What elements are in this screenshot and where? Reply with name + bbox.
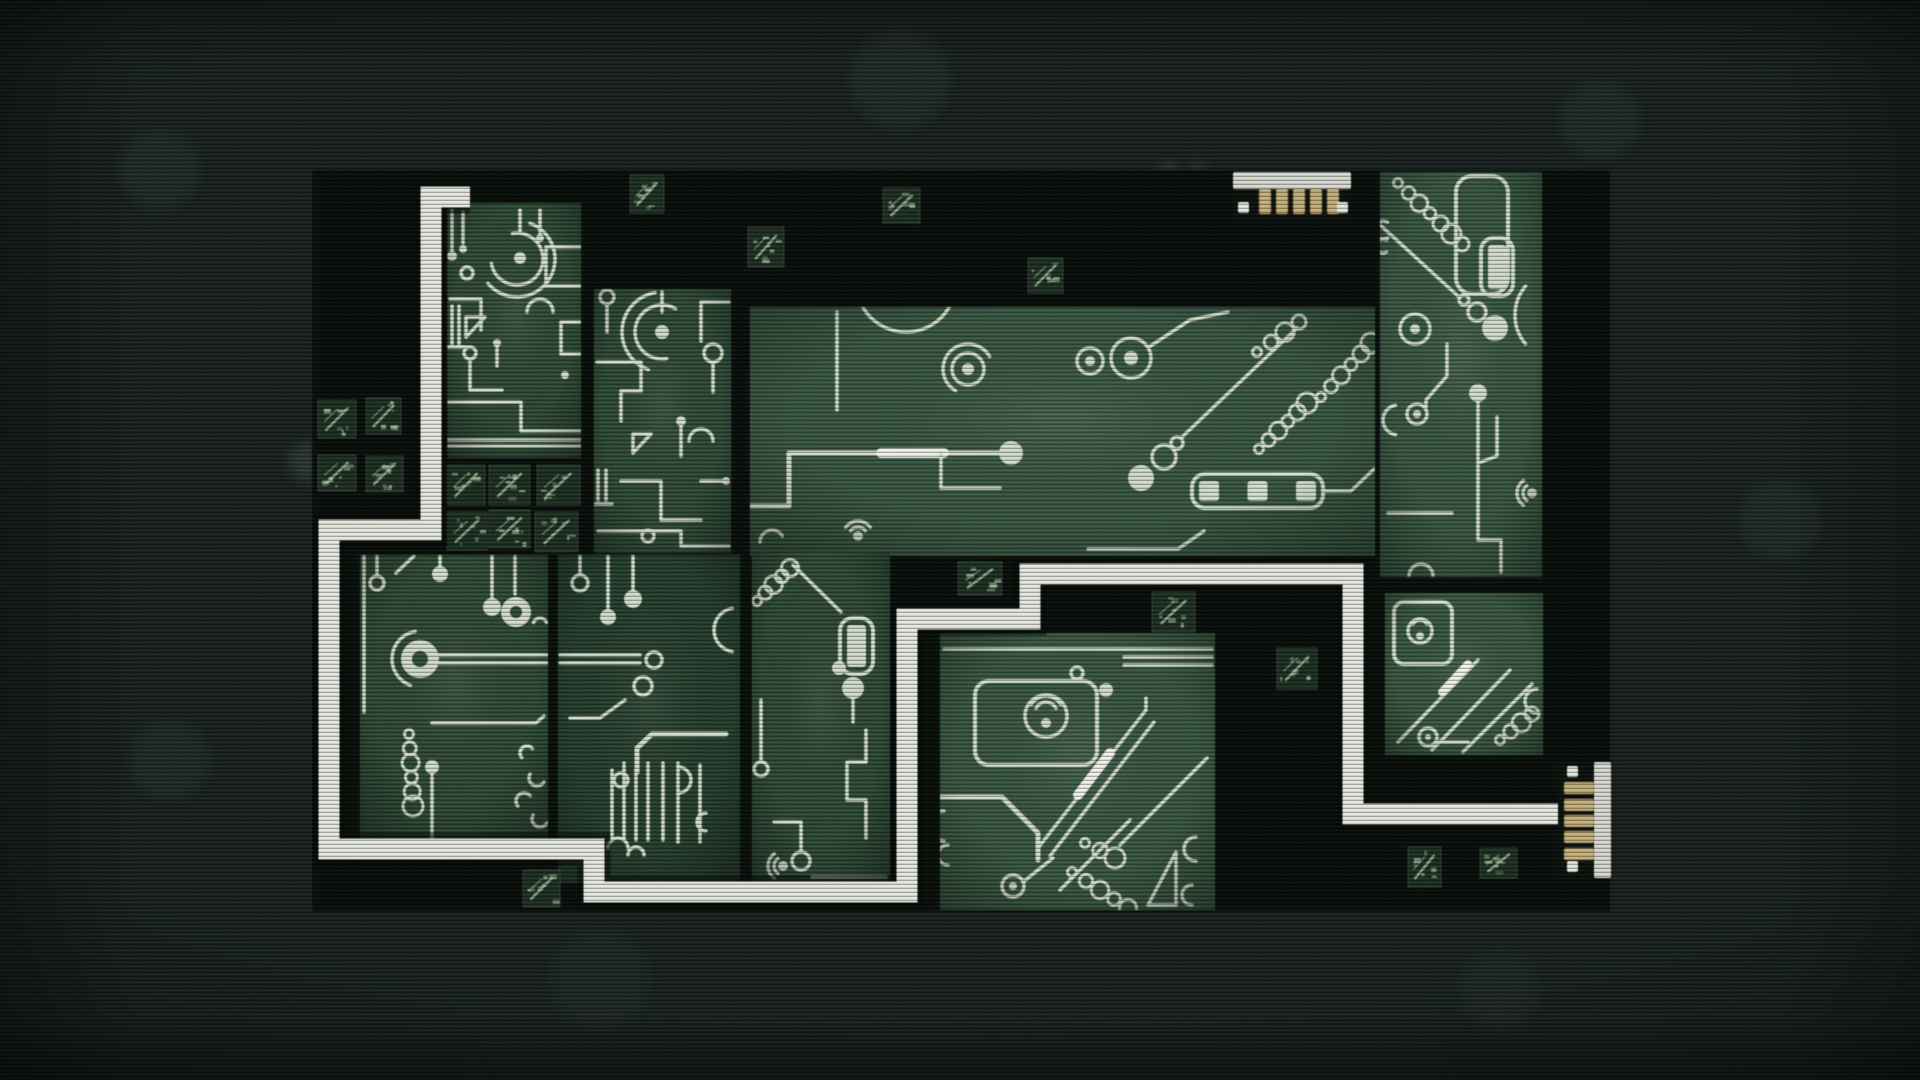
grain-overlay <box>0 0 1920 1080</box>
crt-screen <box>0 0 1920 1080</box>
circuit-board-scene <box>0 0 1920 1080</box>
